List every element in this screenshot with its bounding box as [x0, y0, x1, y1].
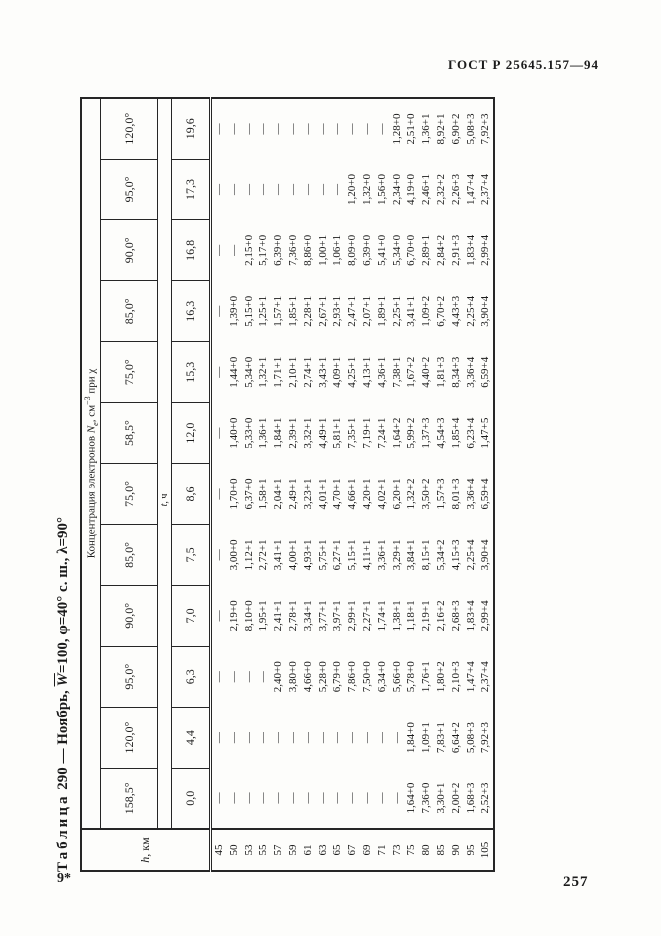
altitude-value-cell: 61 [301, 829, 316, 871]
concentration-value-cell: 1,85+4 [449, 403, 464, 464]
concentration-value-cell: 2,72+1 [256, 524, 271, 585]
chi-value-cell: 158,5° [101, 768, 158, 829]
concentration-value-cell: 2,32+2 [434, 159, 449, 220]
concentration-value-cell: — [301, 159, 316, 220]
altitude-column-header: h, км [81, 829, 211, 871]
concentration-value-cell: 6,79+0 [330, 646, 345, 707]
concentration-value-cell: — [375, 707, 390, 768]
concentration-value-cell: 1,95+1 [256, 585, 271, 646]
concentration-value-cell: 4,49+1 [316, 403, 331, 464]
concentration-value-cell: 1,32+2 [404, 464, 419, 525]
concentration-value-cell: 5,78+0 [404, 646, 419, 707]
concentration-value-cell: 4,01+1 [316, 464, 331, 525]
concentration-value-cell: 7,83+1 [434, 707, 449, 768]
table-row: 69——7,50+02,27+14,11+14,20+17,19+14,13+1… [360, 98, 375, 871]
concentration-value-cell: 3,90+4 [478, 524, 494, 585]
concentration-value-cell: 3,77+1 [316, 585, 331, 646]
concentration-value-cell: — [227, 220, 242, 281]
concentration-value-cell: 1,12+1 [242, 524, 257, 585]
concentration-value-cell: 5,75+1 [316, 524, 331, 585]
concentration-value-cell: 8,10+0 [242, 585, 257, 646]
concentration-value-cell: 1,40+0 [227, 403, 242, 464]
concentration-value-cell: 1,37+3 [419, 403, 434, 464]
concentration-value-cell: — [316, 159, 331, 220]
concentration-value-cell: 4,11+1 [360, 524, 375, 585]
concentration-value-cell: 2,25+1 [390, 281, 405, 342]
concentration-value-cell: 4,43+3 [449, 281, 464, 342]
concentration-value-cell: 5,08+3 [464, 707, 479, 768]
table-row: 53———8,10+01,12+16,37+05,33+05,34+05,15+… [242, 98, 257, 871]
concentration-value-cell: — [211, 524, 227, 585]
concentration-value-cell: — [316, 98, 331, 159]
concentration-value-cell: — [301, 768, 316, 829]
concentration-value-cell: 2,15+0 [242, 220, 257, 281]
chi-value-cell: 95,0° [101, 646, 158, 707]
altitude-value-cell: 80 [419, 829, 434, 871]
concentration-value-cell: 3,90+4 [478, 281, 494, 342]
local-time-values-row: 0,04,46,37,07,58,612,015,316,316,817,319… [172, 98, 211, 871]
concentration-value-cell: 5,08+3 [464, 98, 479, 159]
table-row: 45———————————— [211, 98, 227, 871]
table-title-conditions: =100, φ=40° с. ш., λ=90° [55, 517, 71, 673]
concentration-value-cell: 3,36+4 [464, 342, 479, 403]
concentration-value-cell: 1,36+1 [256, 403, 271, 464]
concentration-value-cell: 2,74+1 [301, 342, 316, 403]
concentration-value-cell: 2,10+1 [286, 342, 301, 403]
page-number: 257 [563, 874, 589, 891]
concentration-value-cell: — [256, 159, 271, 220]
concentration-value-cell: 6,27+1 [330, 524, 345, 585]
concentration-value-cell: — [286, 98, 301, 159]
altitude-value-cell: 73 [390, 829, 405, 871]
concentration-value-cell: 1,64+2 [390, 403, 405, 464]
table-row: 751,64+01,84+05,78+01,18+13,84+11,32+25,… [404, 98, 419, 871]
concentration-value-cell: 5,81+1 [330, 403, 345, 464]
concentration-value-cell: — [211, 585, 227, 646]
concentration-value-cell: 2,39+1 [286, 403, 301, 464]
concentration-value-cell: 7,92+3 [478, 707, 494, 768]
concentration-value-cell: 5,15+1 [345, 524, 360, 585]
concentration-value-cell: 4,66+0 [301, 646, 316, 707]
concentration-value-cell: 1,71+1 [271, 342, 286, 403]
concentration-value-cell: — [211, 220, 227, 281]
table-row: 57——2,40+02,41+13,41+12,04+11,84+11,71+1… [271, 98, 286, 871]
table-row: 63——5,28+03,77+15,75+14,01+14,49+13,43+1… [316, 98, 331, 871]
concentration-value-cell: 1,18+1 [404, 585, 419, 646]
concentration-value-cell: 1,32+1 [256, 342, 271, 403]
concentration-value-cell: 5,99+2 [404, 403, 419, 464]
concentration-value-cell: 7,50+0 [360, 646, 375, 707]
concentration-value-cell: 2,41+1 [271, 585, 286, 646]
concentration-value-cell: 2,25+4 [464, 524, 479, 585]
concentration-value-cell: — [242, 768, 257, 829]
concentration-value-cell: 8,92+1 [434, 98, 449, 159]
local-time-value-cell: 17,3 [172, 159, 211, 220]
concentration-value-cell: 6,90+2 [449, 98, 464, 159]
concentration-value-cell: 3,23+1 [301, 464, 316, 525]
concentration-value-cell: 4,66+1 [345, 464, 360, 525]
concentration-value-cell: 2,46+1 [419, 159, 434, 220]
concentration-value-cell: — [330, 98, 345, 159]
concentration-value-cell: — [330, 707, 345, 768]
concentration-value-cell: 4,02+1 [375, 464, 390, 525]
table-row: 55———1,95+12,72+11,58+11,36+11,32+11,25+… [256, 98, 271, 871]
concentration-value-cell: 2,37+4 [478, 646, 494, 707]
concentration-value-cell: 8,34+3 [449, 342, 464, 403]
concentration-value-cell: 5,15+0 [242, 281, 257, 342]
concentration-value-cell: 1,39+0 [227, 281, 242, 342]
concentration-value-cell: 3,36+1 [375, 524, 390, 585]
chi-value-cell: 85,0° [101, 524, 158, 585]
concentration-value-cell: — [211, 707, 227, 768]
concentration-value-cell: 5,28+0 [316, 646, 331, 707]
local-time-value-cell: 16,8 [172, 220, 211, 281]
concentration-value-cell: — [345, 98, 360, 159]
concentration-value-cell: 8,09+0 [345, 220, 360, 281]
concentration-value-cell: 4,09+1 [330, 342, 345, 403]
concentration-value-cell: 1,44+0 [227, 342, 242, 403]
concentration-value-cell: — [256, 768, 271, 829]
concentration-value-cell: — [242, 646, 257, 707]
concentration-value-cell: 3,41+1 [271, 524, 286, 585]
concentration-value-cell: 6,70+2 [434, 281, 449, 342]
local-time-value-cell: 7,0 [172, 585, 211, 646]
concentration-value-cell: 5,34+0 [242, 342, 257, 403]
concentration-value-cell: 6,70+0 [404, 220, 419, 281]
concentration-value-cell: — [256, 707, 271, 768]
concentration-value-cell: 6,23+4 [464, 403, 479, 464]
concentration-value-cell: 1,89+1 [375, 281, 390, 342]
concentration-value-cell: 3,50+2 [419, 464, 434, 525]
local-time-value-cell: 4,4 [172, 707, 211, 768]
table-header: h, км Концентрация электронов Ne, см−3 п… [81, 98, 211, 871]
concentration-value-cell: 5,34+0 [390, 220, 405, 281]
concentration-value-cell: 3,29+1 [390, 524, 405, 585]
concentration-value-cell: 4,19+0 [404, 159, 419, 220]
concentration-value-cell: 1,84+1 [271, 403, 286, 464]
concentration-value-cell: 3,41+1 [404, 281, 419, 342]
concentration-value-cell: 4,70+1 [330, 464, 345, 525]
altitude-value-cell: 69 [360, 829, 375, 871]
altitude-value-cell: 67 [345, 829, 360, 871]
concentration-value-cell: 1,85+1 [286, 281, 301, 342]
chi-angle-row: 158,5°120,0°95,0°90,0°85,0°75,0°58,5°75,… [101, 98, 158, 871]
concentration-value-cell: 1,68+3 [464, 768, 479, 829]
concentration-value-cell: 6,37+0 [242, 464, 257, 525]
concentration-value-cell: 7,86+0 [345, 646, 360, 707]
concentration-value-cell: 2,99+4 [478, 585, 494, 646]
concentration-value-cell: 3,00+0 [227, 524, 242, 585]
local-time-value-cell: 0,0 [172, 768, 211, 829]
concentration-value-cell: 7,35+1 [345, 403, 360, 464]
concentration-value-cell: 1,57+3 [434, 464, 449, 525]
concentration-value-cell: 6,64+2 [449, 707, 464, 768]
concentration-value-cell: 6,34+0 [375, 646, 390, 707]
concentration-value-cell: 1,56+0 [375, 159, 390, 220]
local-time-value-cell: 8,6 [172, 464, 211, 525]
concentration-value-cell: 8,86+0 [301, 220, 316, 281]
local-time-label-cell: t, ч [158, 98, 172, 829]
print-signature-mark: 9* [57, 871, 71, 887]
chi-value-cell: 120,0° [101, 98, 158, 159]
concentration-value-cell: 4,36+1 [375, 342, 390, 403]
concentration-value-cell: 1,09+1 [419, 707, 434, 768]
concentration-value-cell: — [271, 159, 286, 220]
concentration-value-cell: 2,40+0 [271, 646, 286, 707]
local-time-value-cell: 12,0 [172, 403, 211, 464]
altitude-value-cell: 50 [227, 829, 242, 871]
concentration-value-cell: 2,19+0 [227, 585, 242, 646]
concentration-value-cell: 3,43+1 [316, 342, 331, 403]
altitude-value-cell: 55 [256, 829, 271, 871]
concentration-value-cell: 2,91+3 [449, 220, 464, 281]
concentration-value-cell: 2,34+0 [390, 159, 405, 220]
concentration-value-cell: 2,00+2 [449, 768, 464, 829]
local-time-value-cell: 16,3 [172, 281, 211, 342]
concentration-value-cell: — [375, 98, 390, 159]
concentration-value-cell: 4,54+3 [434, 403, 449, 464]
concentration-value-cell: — [286, 768, 301, 829]
table-row: 1052,52+37,92+32,37+42,99+43,90+46,59+41… [478, 98, 494, 871]
altitude-value-cell: 53 [242, 829, 257, 871]
concentration-value-cell: — [211, 342, 227, 403]
table-row: 71——6,34+01,74+13,36+14,02+17,24+14,36+1… [375, 98, 390, 871]
concentration-value-cell: 2,47+1 [345, 281, 360, 342]
concentration-value-cell: 3,97+1 [330, 585, 345, 646]
local-time-value-cell: 6,3 [172, 646, 211, 707]
concentration-value-cell: 2,27+1 [360, 585, 375, 646]
concentration-value-cell: 7,36+0 [419, 768, 434, 829]
concentration-value-cell: 6,59+4 [478, 464, 494, 525]
table-title: Таблица 290 — Ноябрь, W=100, φ=40° с. ш.… [55, 92, 73, 872]
table-row: 67——7,86+02,99+15,15+14,66+17,35+14,25+1… [345, 98, 360, 871]
concentration-value-cell: — [227, 768, 242, 829]
concentration-value-cell: 3,84+1 [404, 524, 419, 585]
altitude-value-cell: 59 [286, 829, 301, 871]
concentration-value-cell: 2,84+2 [434, 220, 449, 281]
concentration-value-cell: — [330, 768, 345, 829]
concentration-value-cell: 2,67+1 [316, 281, 331, 342]
chi-value-cell: 58,5° [101, 403, 158, 464]
concentration-value-cell: 5,41+0 [375, 220, 390, 281]
concentration-value-cell: 2,52+3 [478, 768, 494, 829]
concentration-value-cell: 2,25+4 [464, 281, 479, 342]
concentration-value-cell: 5,34+2 [434, 524, 449, 585]
concentration-value-cell: — [227, 159, 242, 220]
concentration-value-cell: — [286, 707, 301, 768]
concentration-value-cell: — [256, 646, 271, 707]
concentration-value-cell: 2,04+1 [271, 464, 286, 525]
concentration-value-cell: — [271, 98, 286, 159]
table-body: 45————————————50———2,19+03,00+01,70+01,4… [211, 98, 495, 871]
concentration-value-cell: 4,13+1 [360, 342, 375, 403]
concentration-value-cell: 1,47+4 [464, 159, 479, 220]
concentration-value-cell: 1,47+4 [464, 646, 479, 707]
concentration-value-cell: 8,15+1 [419, 524, 434, 585]
table-row: 73——5,66+01,38+13,29+16,20+11,64+27,38+1… [390, 98, 405, 871]
concentration-value-cell: 4,15+3 [449, 524, 464, 585]
concentration-value-cell: 1,09+2 [419, 281, 434, 342]
rotated-table-block: Таблица 290 — Ноябрь, W=100, φ=40° с. ш.… [55, 92, 500, 872]
concentration-value-cell: 7,92+3 [478, 98, 494, 159]
concentration-value-cell: 2,93+1 [330, 281, 345, 342]
concentration-value-cell: 1,83+4 [464, 220, 479, 281]
table-row: 853,30+17,83+11,80+22,16+25,34+21,57+34,… [434, 98, 449, 871]
solar-index-symbol: W [55, 673, 71, 686]
concentration-value-cell: 7,19+1 [360, 403, 375, 464]
altitude-value-cell: 65 [330, 829, 345, 871]
concentration-value-cell: — [227, 646, 242, 707]
concentration-value-cell: — [375, 768, 390, 829]
concentration-value-cell: 2,37+4 [478, 159, 494, 220]
concentration-value-cell: 1,47+5 [478, 403, 494, 464]
concentration-value-cell: — [227, 707, 242, 768]
chi-value-cell: 95,0° [101, 159, 158, 220]
concentration-value-cell: 2,19+1 [419, 585, 434, 646]
table-row: 59——3,80+02,78+14,00+12,49+12,39+12,10+1… [286, 98, 301, 871]
concentration-value-cell: 1,06+1 [330, 220, 345, 281]
concentration-value-cell: 3,36+4 [464, 464, 479, 525]
concentration-value-cell: 1,74+1 [375, 585, 390, 646]
altitude-value-cell: 105 [478, 829, 494, 871]
concentration-value-cell: — [286, 159, 301, 220]
concentration-value-cell: 1,76+1 [419, 646, 434, 707]
table-row: 50———2,19+03,00+01,70+01,40+01,44+01,39+… [227, 98, 242, 871]
concentration-value-cell: — [242, 707, 257, 768]
concentration-value-cell: 1,80+2 [434, 646, 449, 707]
concentration-value-cell: 2,51+0 [404, 98, 419, 159]
concentration-value-cell: 2,49+1 [286, 464, 301, 525]
concentration-value-cell: 2,99+1 [345, 585, 360, 646]
local-time-value-cell: 7,5 [172, 524, 211, 585]
table-title-text: 290 — Ноябрь, [55, 687, 71, 794]
concentration-value-cell: 3,34+1 [301, 585, 316, 646]
concentration-value-cell: 4,25+1 [345, 342, 360, 403]
concentration-value-cell: — [211, 98, 227, 159]
concentration-value-cell: — [390, 707, 405, 768]
concentration-value-cell: 1,67+2 [404, 342, 419, 403]
concentration-value-cell: — [360, 768, 375, 829]
altitude-value-cell: 45 [211, 829, 227, 871]
altitude-value-cell: 75 [404, 829, 419, 871]
concentration-value-cell: 1,28+0 [390, 98, 405, 159]
concentration-value-cell: — [256, 98, 271, 159]
altitude-value-cell: 71 [375, 829, 390, 871]
concentration-value-cell: 2,78+1 [286, 585, 301, 646]
concentration-value-cell: 5,17+0 [256, 220, 271, 281]
concentration-value-cell: 4,00+1 [286, 524, 301, 585]
altitude-value-cell: 85 [434, 829, 449, 871]
concentration-value-cell: — [360, 98, 375, 159]
concentration-value-cell: — [301, 707, 316, 768]
concentration-value-cell: — [316, 707, 331, 768]
concentration-value-cell: 1,64+0 [404, 768, 419, 829]
concentration-value-cell: 3,80+0 [286, 646, 301, 707]
concentration-value-cell: 5,33+0 [242, 403, 257, 464]
concentration-value-cell: 1,83+4 [464, 585, 479, 646]
concentration-value-cell: 1,20+0 [345, 159, 360, 220]
concentration-value-cell: 4,20+1 [360, 464, 375, 525]
table-row: 61——4,66+03,34+14,93+13,23+13,32+12,74+1… [301, 98, 316, 871]
concentration-value-cell: 1,57+1 [271, 281, 286, 342]
concentration-value-cell: 2,28+1 [301, 281, 316, 342]
concentration-value-cell: — [360, 707, 375, 768]
document-page: ГОСТ Р 25645.157—94 Таблица 290 — Ноябрь… [0, 0, 661, 936]
chi-value-cell: 75,0° [101, 342, 158, 403]
concentration-value-cell: 1,81+3 [434, 342, 449, 403]
concentration-value-cell: 4,40+2 [419, 342, 434, 403]
chi-value-cell: 75,0° [101, 464, 158, 525]
concentration-value-cell: 4,93+1 [301, 524, 316, 585]
local-time-value-cell: 19,6 [172, 98, 211, 159]
concentration-value-cell: 6,59+4 [478, 342, 494, 403]
altitude-value-cell: 63 [316, 829, 331, 871]
concentration-value-cell: 5,66+0 [390, 646, 405, 707]
table-row: 902,00+26,64+22,10+32,68+34,15+38,01+31,… [449, 98, 464, 871]
concentration-value-cell: 7,24+1 [375, 403, 390, 464]
concentration-value-cell: — [242, 98, 257, 159]
concentration-value-cell: — [227, 98, 242, 159]
concentration-value-cell: 6,39+0 [271, 220, 286, 281]
concentration-value-cell: — [316, 768, 331, 829]
concentration-value-cell: 1,70+0 [227, 464, 242, 525]
concentration-value-cell: — [211, 281, 227, 342]
chi-value-cell: 90,0° [101, 220, 158, 281]
concentration-value-cell: 2,68+3 [449, 585, 464, 646]
chi-value-cell: 85,0° [101, 281, 158, 342]
concentration-value-cell: 7,38+1 [390, 342, 405, 403]
concentration-value-cell: 1,84+0 [404, 707, 419, 768]
table-title-word: Таблица [55, 794, 71, 872]
concentration-value-cell: 1,38+1 [390, 585, 405, 646]
table-row: 951,68+35,08+31,47+41,83+42,25+43,36+46,… [464, 98, 479, 871]
concentration-value-cell: 2,99+4 [478, 220, 494, 281]
concentration-value-cell: — [271, 768, 286, 829]
local-time-label-row: t, ч [158, 98, 172, 871]
concentration-value-cell: 2,89+1 [419, 220, 434, 281]
table-row: 807,36+01,09+11,76+12,19+18,15+13,50+21,… [419, 98, 434, 871]
concentration-value-cell: — [390, 768, 405, 829]
concentration-value-cell: 1,36+1 [419, 98, 434, 159]
concentration-value-cell: 8,01+3 [449, 464, 464, 525]
altitude-value-cell: 90 [449, 829, 464, 871]
concentration-value-cell: 1,32+0 [360, 159, 375, 220]
concentration-value-cell: — [242, 159, 257, 220]
concentration-value-cell: 3,32+1 [301, 403, 316, 464]
chi-value-cell: 120,0° [101, 707, 158, 768]
concentration-value-cell: 2,16+2 [434, 585, 449, 646]
concentration-value-cell: — [211, 403, 227, 464]
chi-value-cell: 90,0° [101, 585, 158, 646]
concentration-value-cell: 6,39+0 [360, 220, 375, 281]
altitude-value-cell: 95 [464, 829, 479, 871]
local-time-value-cell: 15,3 [172, 342, 211, 403]
concentration-value-cell: 2,10+3 [449, 646, 464, 707]
concentration-value-cell: — [345, 768, 360, 829]
table-row: 65——6,79+03,97+16,27+14,70+15,81+14,09+1… [330, 98, 345, 871]
electron-concentration-table: h, км Концентрация электронов Ne, см−3 п… [80, 97, 495, 872]
concentration-span-header: Концентрация электронов Ne, см−3 при χ [81, 98, 101, 829]
concentration-value-cell: — [211, 768, 227, 829]
concentration-value-cell: 7,36+0 [286, 220, 301, 281]
concentration-value-cell: 2,07+1 [360, 281, 375, 342]
concentration-value-cell: 3,30+1 [434, 768, 449, 829]
concentration-value-cell: 1,00+1 [316, 220, 331, 281]
concentration-value-cell: 6,20+1 [390, 464, 405, 525]
concentration-value-cell: 2,26+3 [449, 159, 464, 220]
concentration-value-cell: — [271, 707, 286, 768]
standard-number-header: ГОСТ Р 25645.157—94 [448, 57, 599, 73]
